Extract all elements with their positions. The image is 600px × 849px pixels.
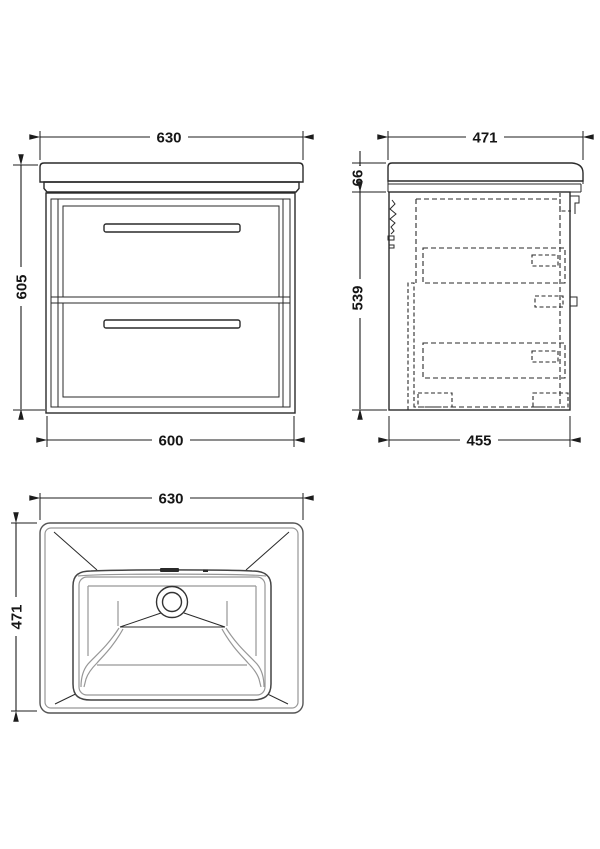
side-dim-bottom-label: 455: [466, 432, 491, 449]
plan-dim-top-label: 630: [158, 490, 183, 507]
drain-hole-outer: [157, 587, 188, 618]
front-drawer-bottom: [63, 303, 279, 397]
front-basin: [40, 163, 303, 192]
front-dim-left-label: 605: [13, 274, 30, 299]
technical-drawing: 630 605 600: [0, 0, 600, 849]
side-basin: [388, 163, 583, 192]
side-view: 471 66 539 455: [349, 129, 583, 449]
plan-dim-left: 471: [8, 523, 37, 711]
side-dim-bottom: 455: [389, 416, 570, 449]
overflow-slot: [160, 568, 179, 572]
front-view: 630 605 600: [13, 129, 303, 449]
side-dim-cabinet-label: 539: [349, 285, 366, 310]
front-dim-bottom: 600: [47, 416, 294, 449]
tap-mark: [203, 570, 208, 573]
plan-dim-left-label: 471: [8, 604, 25, 629]
plan-dim-top: 630: [40, 490, 303, 520]
side-drawer-runners: [418, 248, 568, 407]
front-dim-top-label: 630: [156, 129, 181, 146]
hanging-bracket: [570, 196, 579, 214]
front-dim-left: 605: [13, 165, 45, 410]
side-dim-top: 471: [388, 129, 583, 160]
side-back-panel-gap: [408, 283, 414, 410]
side-dim-cabinet: 539: [349, 192, 387, 410]
drawer-handle-top: [104, 224, 240, 232]
side-dim-basin-label: 66: [349, 170, 366, 187]
side-cabinet: [389, 192, 579, 410]
drawing-canvas: 630 605 600: [0, 0, 600, 849]
front-dim-bottom-label: 600: [158, 432, 183, 449]
bracket-adjuster: [570, 297, 577, 306]
front-dim-top: 630: [40, 129, 303, 160]
plan-view: 630 471: [8, 490, 303, 713]
front-drawer-top: [63, 206, 279, 297]
side-dim-top-label: 471: [472, 129, 497, 146]
side-dim-basin: 66: [349, 151, 386, 192]
drawer-handle-bottom: [104, 320, 240, 328]
